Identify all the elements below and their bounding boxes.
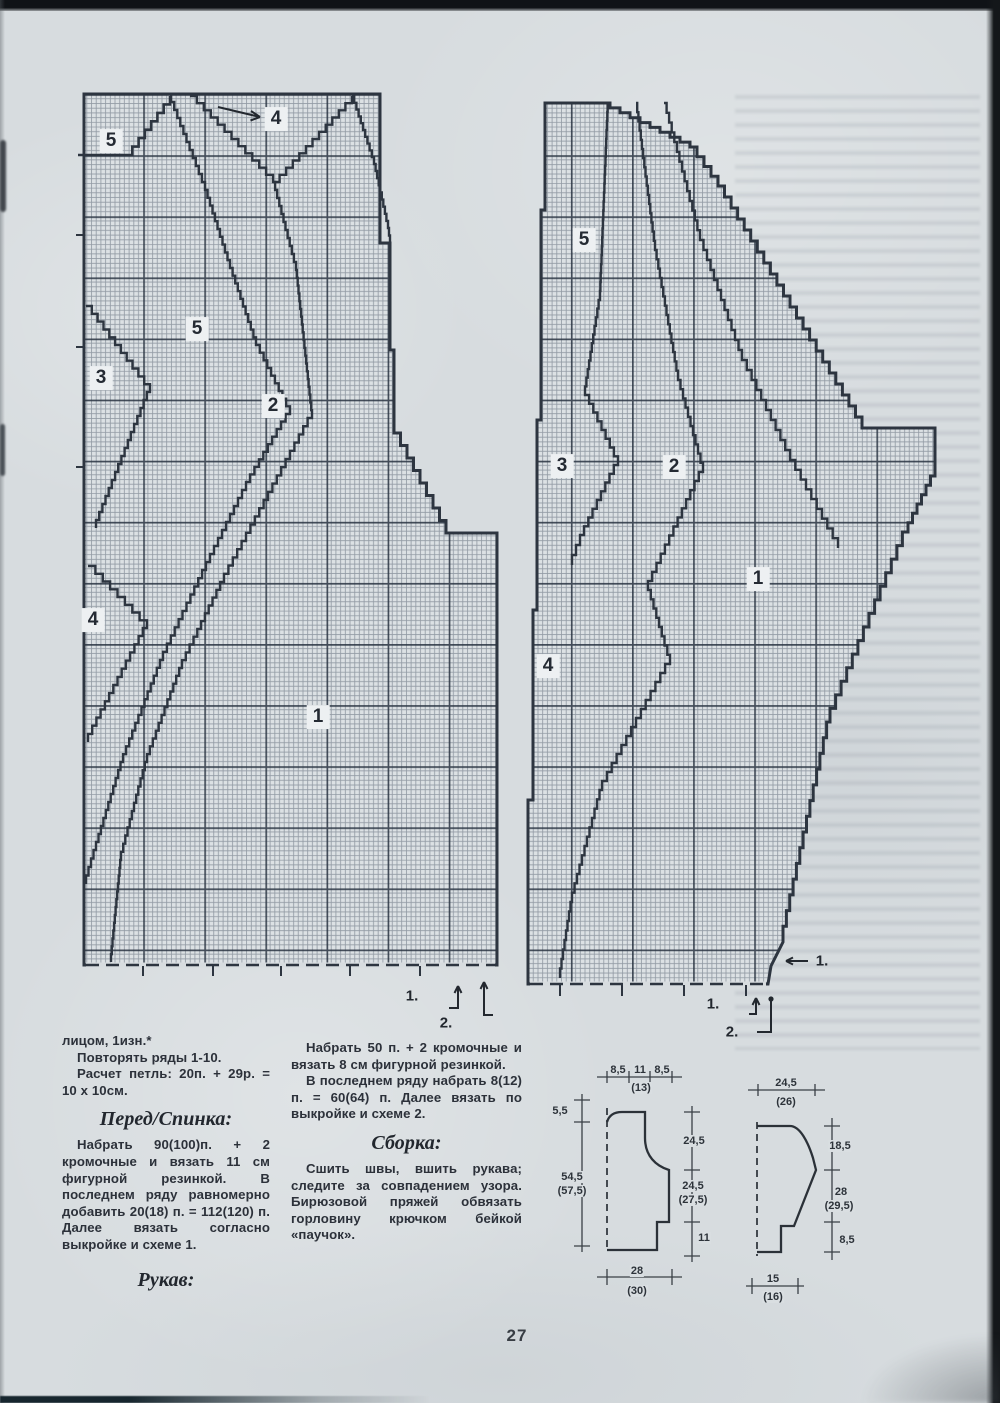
scan-smudge xyxy=(0,424,5,476)
paragraph: Повторять ряды 1-10. xyxy=(62,1050,270,1067)
dimension-label: 5,5 xyxy=(551,1105,568,1117)
chart-annotation-label: 1. xyxy=(707,996,720,1013)
scan-smudge xyxy=(0,140,6,212)
chart-region-label: 3 xyxy=(90,366,113,390)
dimension-label: 8,5 xyxy=(609,1064,626,1076)
scan-edge-top xyxy=(0,0,1000,11)
dimension-label: (27,5) xyxy=(678,1194,709,1206)
page-number: 27 xyxy=(492,1326,542,1346)
chart-region-label: 2 xyxy=(663,455,686,479)
dimension-label: 24,5 xyxy=(681,1180,704,1192)
chart-region-label: 1 xyxy=(307,705,330,729)
instructions-left-column: лицом, 1изн.* Повторять ряды 1-10. Расче… xyxy=(62,1033,270,1298)
dimension-label: (16) xyxy=(762,1291,784,1303)
chart-region-label: 4 xyxy=(265,107,288,131)
chart-region-label: 3 xyxy=(551,454,574,478)
paragraph: Набрать 90(100)п. + 2 кромочные и вязать… xyxy=(62,1137,270,1253)
scan-shadow-bottom-right xyxy=(860,1333,1000,1403)
dimension-label: 15 xyxy=(766,1273,780,1285)
chart-region-label: 5 xyxy=(100,129,123,153)
chart-region-label: 5 xyxy=(186,317,209,341)
paragraph: Расчет петль: 20п. + 29р. = 10 х 10см. xyxy=(62,1066,270,1099)
dimension-label: 8,5 xyxy=(653,1064,670,1076)
scan-edge-bottom-left xyxy=(0,1396,430,1403)
schematic-body xyxy=(574,1071,700,1285)
chart-annotation-label: 2. xyxy=(726,1024,739,1041)
dimension-label: (57,5) xyxy=(557,1185,588,1197)
dimension-label: 24,5 xyxy=(682,1135,705,1147)
chart1-shape xyxy=(76,94,497,976)
section-heading-sleeve: Рукав: xyxy=(62,1269,270,1292)
dimension-label: (29,5) xyxy=(824,1200,855,1212)
scan-edge-right xyxy=(986,0,1000,1403)
dimension-label: 28 xyxy=(834,1186,848,1198)
section-heading-front-back: Перед/Спинка: xyxy=(62,1108,270,1131)
dimension-label: 24,5 xyxy=(774,1077,797,1089)
chart-region-label: 4 xyxy=(537,654,560,678)
dimension-label: (13) xyxy=(630,1082,652,1094)
schematic-sleeve xyxy=(746,1084,840,1294)
paragraph: лицом, 1изн.* xyxy=(62,1033,270,1050)
dimension-label: 18,5 xyxy=(828,1140,851,1152)
paragraph: Сшить швы, вшить рукава; следите за совп… xyxy=(291,1161,522,1244)
chart-region-label: 4 xyxy=(82,608,105,632)
chart-region-label: 1 xyxy=(747,567,770,591)
dimension-label: 54,5 xyxy=(560,1171,583,1183)
dimension-label: 28 xyxy=(630,1265,644,1277)
chart-region-label: 2 xyxy=(262,394,285,418)
dimension-label: (30) xyxy=(626,1285,648,1297)
instructions-middle-column: Набрать 50 п. + 2 кромочные и вязать 8 с… xyxy=(291,1040,522,1244)
dimension-label: 8,5 xyxy=(838,1234,855,1246)
dimension-label: (26) xyxy=(775,1096,797,1108)
dimension-label: 11 xyxy=(697,1232,711,1244)
chart-annotation-label: 1. xyxy=(406,988,419,1005)
chart-region-label: 5 xyxy=(573,228,596,252)
section-heading-assembly: Сборка: xyxy=(291,1132,522,1155)
magazine-page: { "page": { "number": "27" }, "charts": … xyxy=(0,0,1000,1403)
chart-annotation-label: 1. xyxy=(816,953,829,970)
paragraph: Набрать 50 п. + 2 кромочные и вязать 8 с… xyxy=(291,1040,522,1073)
paragraph: В последнем ряду набрать 8(12) п. = 60(6… xyxy=(291,1073,522,1123)
dimension-label: 11 xyxy=(633,1064,647,1076)
chart-annotation-label: 2. xyxy=(440,1015,453,1032)
